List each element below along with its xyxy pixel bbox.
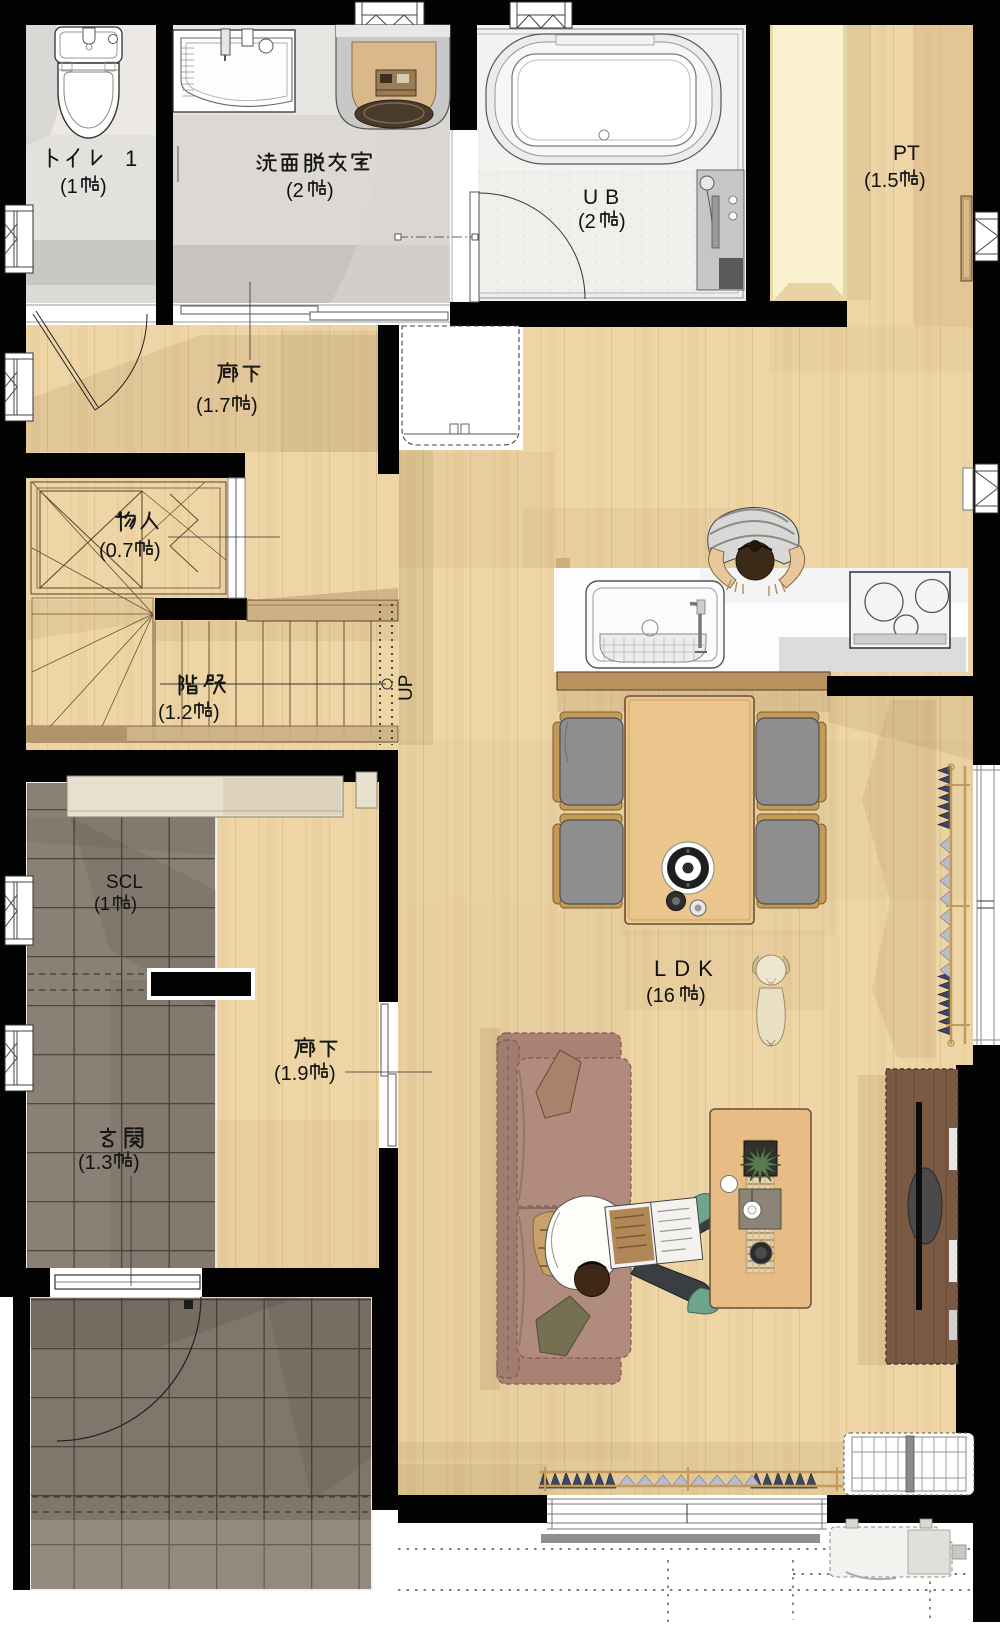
svg-text:(16: (16 (646, 985, 675, 1007)
svg-text:): ) (619, 211, 626, 233)
svg-text:UB: UB (583, 186, 626, 209)
svg-text:(1: (1 (94, 894, 110, 914)
svg-text:(1.7: (1.7 (196, 395, 230, 417)
svg-text:(0.7: (0.7 (99, 540, 133, 562)
svg-text:): ) (100, 176, 107, 198)
svg-text:1: 1 (125, 146, 137, 171)
svg-text:PT: PT (893, 142, 920, 165)
svg-text:): ) (327, 180, 334, 202)
svg-text:): ) (329, 1063, 336, 1085)
svg-text:): ) (699, 985, 706, 1007)
svg-text:(1.9: (1.9 (274, 1063, 308, 1085)
svg-text:LDK: LDK (654, 956, 721, 981)
svg-text:): ) (133, 1152, 140, 1174)
svg-text:(1.3: (1.3 (78, 1152, 112, 1174)
svg-text:(2: (2 (286, 180, 304, 202)
svg-text:UP: UP (396, 675, 417, 701)
svg-text:): ) (251, 395, 258, 417)
svg-text:(1: (1 (60, 176, 78, 198)
svg-text:): ) (154, 540, 161, 562)
svg-text:(1.2: (1.2 (158, 702, 192, 724)
svg-text:(1.5: (1.5 (864, 170, 898, 192)
svg-text:): ) (213, 702, 220, 724)
svg-text:SCL: SCL (106, 872, 143, 893)
svg-text:): ) (131, 894, 137, 914)
svg-text:(2: (2 (578, 211, 596, 233)
svg-text:): ) (919, 170, 926, 192)
